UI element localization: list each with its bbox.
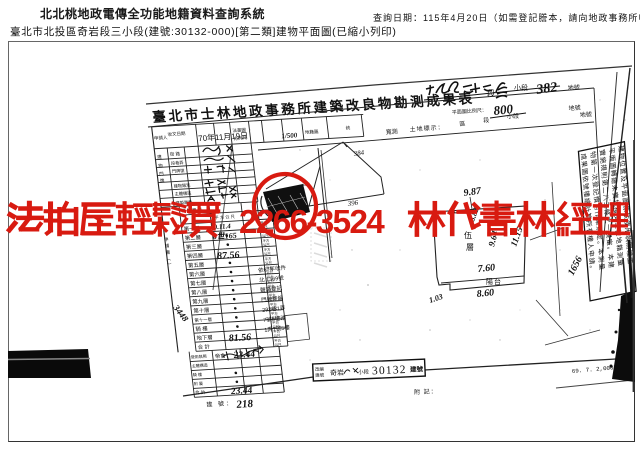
svg-text:合 計: 合 計 xyxy=(197,342,211,351)
svg-text:使用執照: 使用執照 xyxy=(190,353,207,360)
svg-text:層: 層 xyxy=(466,243,474,252)
svg-text:8.60: 8.60 xyxy=(476,287,495,300)
svg-text:陽台: 陽台 xyxy=(486,277,502,286)
svg-text:伍: 伍 xyxy=(464,230,472,240)
svg-text:區: 區 xyxy=(459,121,465,128)
svg-text:統: 統 xyxy=(345,124,351,131)
svg-text:建 號：: 建 號： xyxy=(206,399,235,409)
svg-text:主體構造: 主體構造 xyxy=(191,362,208,369)
svg-text:平面圖比例尺：: 平面圖比例尺： xyxy=(452,107,487,116)
svg-text:土地標示：: 土地標示： xyxy=(409,123,444,133)
svg-text:地籍圖: 地籍圖 xyxy=(305,128,320,136)
svg-text:384: 384 xyxy=(352,149,365,159)
svg-text:1.03: 1.03 xyxy=(428,292,444,305)
svg-text:第十層: 第十層 xyxy=(193,306,210,315)
svg-text:寬測: 寬測 xyxy=(386,127,399,136)
svg-text:合 計: 合 計 xyxy=(195,389,207,397)
svg-text:9.87: 9.87 xyxy=(463,186,483,199)
svg-text:門牌號: 門牌號 xyxy=(172,167,186,175)
svg-text:第四層: 第四層 xyxy=(186,251,203,260)
svg-text:2266-3524: 2266-3524 xyxy=(239,204,385,241)
svg-text:第六層: 第六層 xyxy=(189,270,206,279)
svg-text:第十一層: 第十一層 xyxy=(194,316,212,324)
svg-text:公尺: 公尺 xyxy=(263,243,271,247)
svg-text:30132: 30132 xyxy=(372,364,407,378)
svg-text:87.56: 87.56 xyxy=(216,250,240,262)
svg-text:1/500: 1/500 xyxy=(281,131,298,140)
svg-text:0.11.4: 0.11.4 xyxy=(213,222,231,231)
svg-text:公尺: 公尺 xyxy=(273,334,281,338)
svg-text:公尺: 公尺 xyxy=(264,252,272,256)
svg-text:地號: 地號 xyxy=(568,104,581,113)
svg-text:第三層: 第三層 xyxy=(185,242,202,251)
svg-text:街 路: 街 路 xyxy=(170,150,182,158)
svg-text:申請書（）: 申請書（） xyxy=(163,236,173,270)
svg-text:騎 樓: 騎 樓 xyxy=(195,324,209,333)
svg-text:附 屬: 附 屬 xyxy=(193,380,203,386)
svg-text:臺北市士林地政事務所建築改良物勘測成果表: 臺北市士林地政事務所建築改良物勘測成果表 xyxy=(152,90,476,125)
svg-text:段巷弄: 段巷弄 xyxy=(171,159,184,167)
svg-text:門: 門 xyxy=(159,171,165,177)
svg-text:第八層: 第八層 xyxy=(191,288,208,297)
svg-text:第五層: 第五層 xyxy=(188,260,205,269)
svg-text:81.56: 81.56 xyxy=(228,332,252,344)
svg-text:段: 段 xyxy=(483,116,490,124)
svg-text:騎 樓: 騎 樓 xyxy=(192,371,202,377)
svg-text:第七層: 第七層 xyxy=(190,279,207,288)
svg-text:1656: 1656 xyxy=(566,255,585,278)
svg-text:公尺: 公尺 xyxy=(275,343,283,347)
svg-text:平 方 公 尺: 平 方 公 尺 xyxy=(214,213,235,221)
svg-text:附 記：: 附 記： xyxy=(414,387,438,396)
svg-text:物: 物 xyxy=(158,162,164,169)
svg-text:申請人: 申請人 xyxy=(154,134,169,142)
svg-text:比例尺: 比例尺 xyxy=(233,134,248,142)
svg-text:69. 7. 2,000本: 69. 7. 2,000本 xyxy=(571,363,619,375)
svg-text:218: 218 xyxy=(235,398,254,411)
svg-text:地號: 地號 xyxy=(580,110,593,119)
svg-text:7.60: 7.60 xyxy=(477,262,496,275)
svg-text:收文日期: 收文日期 xyxy=(167,130,186,138)
svg-text:第九層: 第九層 xyxy=(192,297,209,306)
svg-text:公尺: 公尺 xyxy=(265,261,273,265)
svg-text:牌: 牌 xyxy=(160,177,166,184)
svg-text:23.44: 23.44 xyxy=(229,386,253,397)
svg-text:地號: 地號 xyxy=(568,83,581,92)
svg-text:382: 382 xyxy=(534,80,558,98)
svg-text:地下層: 地下層 xyxy=(196,333,213,342)
